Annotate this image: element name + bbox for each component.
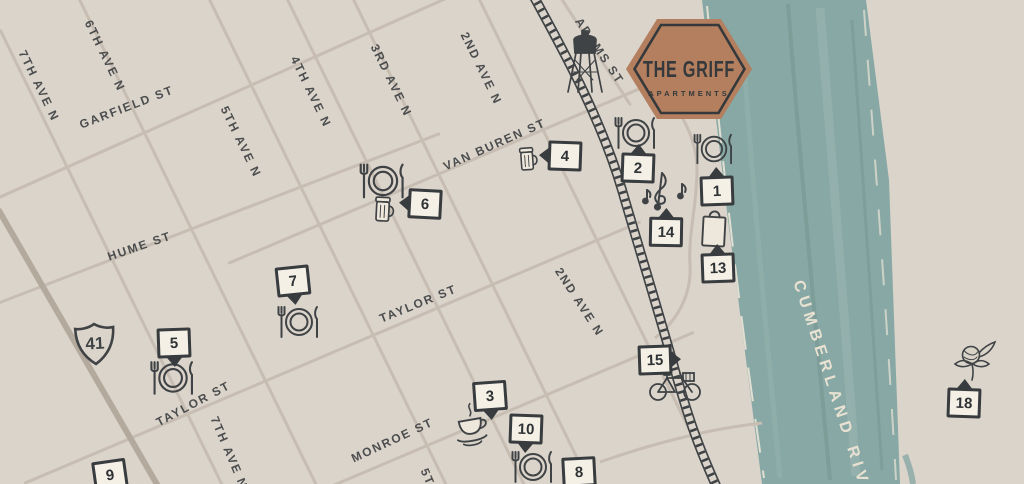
marker-number: 2	[634, 159, 643, 176]
marker-pointer	[956, 379, 972, 390]
beer-mug-icon[interactable]	[371, 190, 399, 227]
street-label-hume-st: HUME ST	[106, 229, 174, 264]
shield-number: 41	[85, 334, 105, 354]
logo-subtitle: APARTMENTS	[648, 89, 730, 98]
marker-pointer	[708, 167, 724, 178]
marker-number: 7	[288, 272, 298, 290]
map-marker-10[interactable]: 10	[508, 413, 543, 444]
marker-number: 18	[955, 394, 972, 412]
road-5th-ave-n	[207, 0, 451, 484]
river-name-label: CUMBERLAND RIVER	[788, 278, 882, 484]
marker-pointer	[399, 195, 410, 212]
map-marker-13[interactable]: 13	[700, 252, 735, 283]
street-label-5th-ave-n: 5TH AVE N	[218, 104, 265, 180]
marker-number: 9	[105, 466, 116, 484]
map-marker-6[interactable]: 6	[407, 188, 443, 220]
marker-pointer	[630, 144, 646, 155]
street-label-2nd-ave-n-lower: 2ND AVE N	[552, 265, 607, 339]
marker-number: 3	[485, 387, 495, 405]
marker-number: 14	[658, 223, 675, 240]
street-label-4th-ave-n: 4TH AVE N	[288, 54, 335, 130]
marker-pointer	[671, 351, 682, 367]
marker-number: 15	[646, 351, 663, 369]
marker-pointer	[166, 357, 182, 368]
marker-number: 10	[517, 420, 534, 438]
logo-title: THE GRIFF	[643, 56, 735, 82]
map-marker-14[interactable]: 14	[649, 217, 684, 248]
map-marker-3[interactable]: 3	[472, 380, 508, 412]
map-marker-4[interactable]: 4	[547, 140, 582, 171]
restaurant-icon[interactable]	[276, 303, 322, 341]
map-marker-18[interactable]: 18	[946, 387, 981, 418]
map-marker-9[interactable]: 9	[91, 458, 129, 484]
map-marker-2[interactable]: 2	[620, 152, 655, 183]
marker-number: 5	[170, 334, 179, 351]
flower-icon[interactable]	[950, 340, 998, 382]
marker-number: 1	[713, 182, 722, 199]
marker-pointer	[658, 208, 674, 218]
street-label-6th-ave-n: 6TH AVE N	[82, 18, 129, 94]
marker-number: 4	[561, 147, 570, 164]
map-marker-5[interactable]: 5	[156, 327, 191, 358]
water-tower-icon	[562, 30, 608, 96]
griff-neighborhood-map: 7TH AVE N 6TH AVE N GARFIELD ST 5TH AVE …	[0, 0, 1024, 484]
map-marker-1[interactable]: 1	[699, 175, 734, 206]
marker-number: 13	[709, 259, 726, 277]
marker-number: 8	[574, 463, 583, 480]
marker-pointer	[483, 409, 500, 420]
map-marker-8[interactable]: 8	[561, 456, 597, 484]
restaurant-icon[interactable]	[692, 131, 736, 167]
marker-pointer	[709, 244, 725, 255]
map-marker-15[interactable]: 15	[637, 344, 672, 375]
the-griff-logo-badge: THE GRIFF APARTMENTS	[623, 16, 755, 122]
map-marker-7[interactable]: 7	[275, 264, 312, 297]
marker-pointer	[539, 147, 550, 163]
us-route-41-shield: 41	[71, 319, 119, 369]
marker-number: 6	[420, 195, 429, 212]
marker-pointer	[517, 443, 533, 454]
restaurant-icon[interactable]	[509, 448, 557, 484]
street-label-3rd-ave-n: 3RD AVE N	[368, 42, 415, 119]
marker-pointer	[287, 294, 304, 306]
